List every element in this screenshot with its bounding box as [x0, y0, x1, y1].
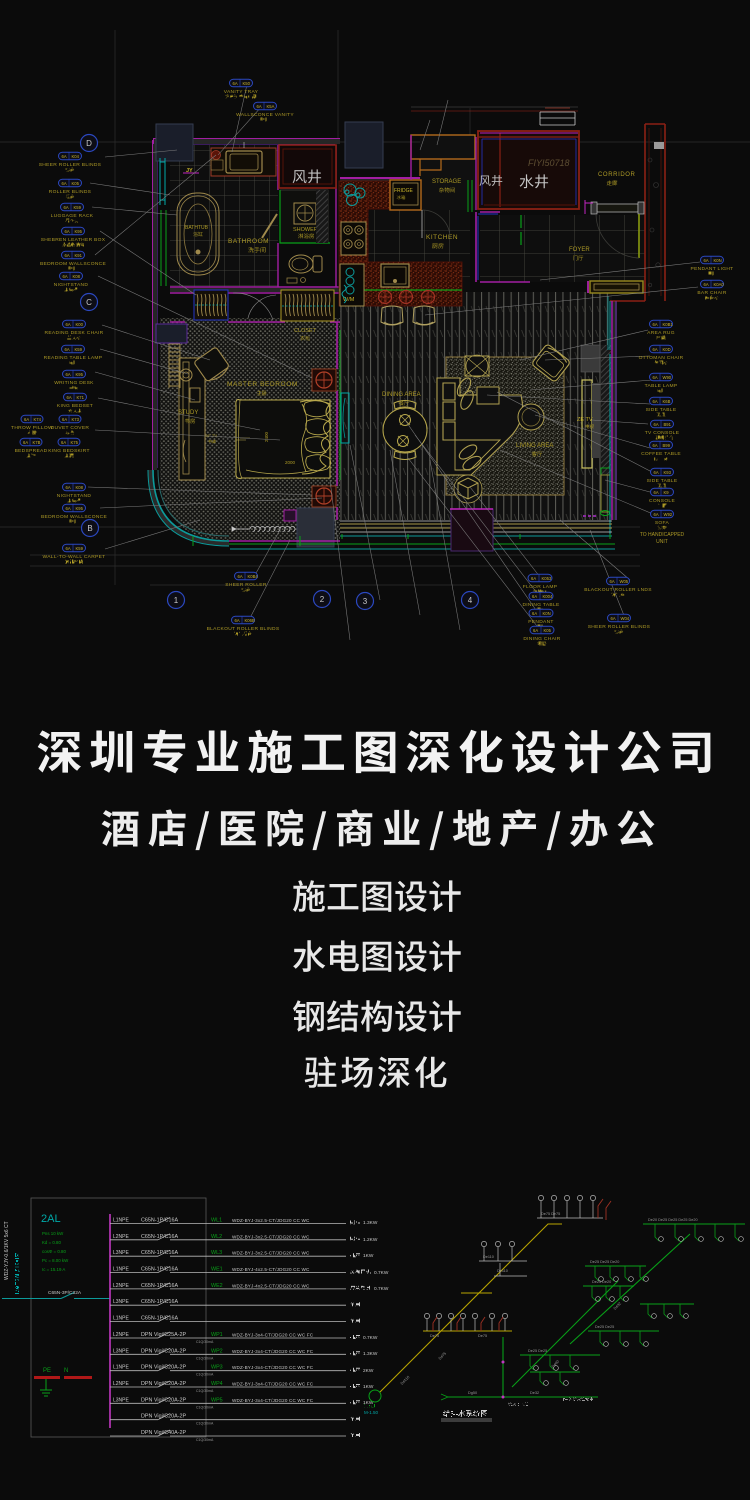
svg-text:L1NPE: L1NPE [113, 1267, 130, 1273]
svg-text:K0B4: K0B4 [248, 574, 259, 579]
svg-text:KITCHEN: KITCHEN [426, 234, 458, 241]
svg-text:K04: K04 [72, 154, 80, 159]
svg-text:WP2: WP2 [211, 1348, 223, 1354]
svg-text:cosΦ = 0.80: cosΦ = 0.80 [42, 1249, 66, 1254]
svg-text:6A: 6A [704, 258, 709, 263]
svg-text:6A: 6A [654, 490, 659, 495]
svg-text:C1Q/30mA: C1Q/30mA [196, 1405, 214, 1409]
svg-text:6A: 6A [654, 470, 659, 475]
svg-text:DPN Vigi/C40A-2P: DPN Vigi/C40A-2P [141, 1430, 187, 1436]
svg-text:4: 4 [468, 596, 473, 605]
svg-text:KING BEDSET: KING BEDSET [57, 403, 93, 409]
svg-text:Pc = 8.00 kW: Pc = 8.00 kW [42, 1258, 69, 1263]
svg-text:6A: 6A [62, 154, 67, 159]
svg-text:B91: B91 [664, 422, 672, 427]
svg-text:PENDANT LIGHT: PENDANT LIGHT [691, 266, 734, 272]
svg-text:L3NPE: L3NPE [113, 1397, 130, 1403]
svg-text:NIGHTSTAND: NIGHTSTAND [57, 493, 92, 499]
svg-text:0.7KW: 0.7KW [374, 1270, 389, 1276]
svg-text:K004: K004 [543, 594, 553, 599]
svg-text:UNIT: UNIT [656, 539, 668, 545]
svg-text:VANITY TRAY: VANITY TRAY [224, 89, 259, 95]
svg-text:L2NPE: L2NPE [113, 1381, 130, 1387]
svg-text:6A: 6A [654, 512, 659, 517]
svg-text:6A: 6A [531, 576, 536, 581]
svg-text:1KW: 1KW [363, 1384, 374, 1390]
svg-text:DPN Vigi/C25A-2P: DPN Vigi/C25A-2P [141, 1332, 187, 1338]
svg-text:C1Q/30mA: C1Q/30mA [196, 1389, 214, 1393]
svg-text:1.2KW: 1.2KW [363, 1237, 378, 1243]
svg-text:SHEER ROLLER BLINDS: SHEER ROLLER BLINDS [588, 624, 651, 630]
svg-text:BLACKOUT ROLLER BLINDS: BLACKOUT ROLLER BLINDS [207, 626, 280, 632]
svg-text:BAR CHAIR: BAR CHAIR [697, 290, 726, 296]
svg-text:C1Q/30mA: C1Q/30mA [196, 1438, 214, 1442]
svg-text:W92: W92 [664, 512, 673, 517]
svg-text:De110: De110 [483, 1255, 494, 1259]
svg-text:WP1: WP1 [211, 1332, 223, 1338]
svg-text:BEDSPREAD: BEDSPREAD [15, 448, 48, 454]
svg-text:K93: K93 [664, 470, 672, 475]
svg-text:Ic = 15.19 A: Ic = 15.19 A [42, 1267, 65, 1272]
svg-text:B99: B99 [663, 443, 671, 448]
svg-text:FLOOR LAMP: FLOOR LAMP [523, 584, 558, 590]
svg-text:D: D [86, 139, 92, 148]
svg-text:DINING CHAIR: DINING CHAIR [523, 636, 560, 642]
svg-text:K05: K05 [72, 181, 80, 186]
svg-text:K05: K05 [544, 628, 552, 633]
svg-text:Dg50: Dg50 [468, 1391, 477, 1395]
svg-text:2000: 2000 [285, 460, 296, 465]
svg-text:K50: K50 [243, 81, 251, 86]
svg-text:6A: 6A [238, 574, 243, 579]
svg-text:2AL: 2AL [41, 1213, 61, 1225]
svg-text:6A: 6A [66, 506, 71, 511]
svg-text:TABLE LAMP: TABLE LAMP [645, 383, 678, 389]
svg-text:WRITING DESK: WRITING DESK [54, 380, 94, 386]
svg-text:READING TABLE LAMP: READING TABLE LAMP [44, 355, 103, 361]
svg-text:WL3: WL3 [211, 1250, 222, 1256]
svg-text:CONSOLE: CONSOLE [649, 498, 675, 504]
svg-text:De75: De75 [478, 1334, 487, 1338]
svg-text:MASTER BEDROOM: MASTER BEDROOM [227, 381, 298, 388]
svg-text:AREA RUG: AREA RUG [647, 330, 675, 336]
svg-text:L1NPE: L1NPE [113, 1218, 130, 1224]
svg-text:WDZ-BYJ-4x2.5-CT/JDG20 CC WC: WDZ-BYJ-4x2.5-CT/JDG20 CC WC [232, 1267, 310, 1272]
svg-text:WDZ-BYJ-3x2.5-CT/JDG20 CC WC: WDZ-BYJ-3x2.5-CT/JDG20 CC WC [232, 1234, 310, 1239]
svg-text:DPN Vigi/C20A-2P: DPN Vigi/C20A-2P [141, 1348, 187, 1354]
svg-text:6A: 6A [65, 229, 70, 234]
svg-text:WDZ-BYJ-3x4-CT/JDG20 CC WC FC: WDZ-BYJ-3x4-CT/JDG20 CC WC FC [232, 1382, 314, 1387]
svg-text:FOYER: FOYER [569, 247, 590, 253]
svg-text:WL1: WL1 [211, 1218, 222, 1224]
svg-text:C65N-1P/C16A: C65N-1P/C16A [141, 1316, 179, 1322]
svg-text:K59: K59 [76, 546, 84, 551]
svg-text:2: 2 [320, 595, 325, 604]
svg-text:6A: 6A [233, 81, 238, 86]
svg-text:BATHROOM: BATHROOM [228, 238, 269, 245]
svg-text:L2NPE: L2NPE [113, 1283, 130, 1289]
svg-text:L2NPE: L2NPE [113, 1234, 130, 1240]
svg-text:COFFEE TABLE: COFFEE TABLE [641, 451, 681, 457]
svg-text:0.7KW: 0.7KW [363, 1335, 378, 1341]
svg-text:ROLLER BLINDS: ROLLER BLINDS [49, 189, 92, 195]
svg-text:K00: K00 [76, 322, 84, 327]
svg-text:SOFA: SOFA [655, 520, 670, 526]
svg-text:C1Q/30mA: C1Q/30mA [196, 1422, 214, 1426]
svg-text:K73: K73 [72, 417, 80, 422]
svg-text:W04: W04 [621, 616, 630, 621]
svg-text:K59: K59 [75, 347, 83, 352]
svg-text:6A: 6A [65, 347, 70, 352]
svg-text:C: C [86, 298, 92, 307]
svg-text:6A: 6A [235, 618, 240, 623]
svg-text:K08: K08 [76, 485, 84, 490]
svg-text:K5A: K5A [267, 104, 275, 109]
svg-text:3: 3 [363, 597, 368, 606]
svg-text:6A: 6A [533, 628, 538, 633]
svg-text:K91: K91 [75, 253, 83, 258]
svg-text:K7B: K7B [33, 440, 41, 445]
svg-text:WDZ-BYJ-3x2.5-CT/JDG20 CC WC: WDZ-BYJ-3x2.5-CT/JDG20 CC WC [232, 1218, 310, 1223]
svg-text:BEDROOM WALLSCONCE: BEDROOM WALLSCONCE [41, 514, 108, 520]
svg-text:6A: 6A [653, 322, 658, 327]
svg-text:DINING AREA: DINING AREA [382, 392, 421, 398]
svg-text:B: B [87, 524, 92, 533]
svg-text:0.7KW: 0.7KW [374, 1286, 389, 1292]
svg-text:K0D: K0D [663, 347, 671, 352]
svg-text:6A: 6A [62, 417, 67, 422]
svg-text:DINING TABLE: DINING TABLE [522, 602, 560, 608]
svg-text:K0N: K0N [543, 611, 551, 616]
svg-text:C1Q/30mA: C1Q/30mA [196, 1373, 214, 1377]
svg-text:2KW: 2KW [363, 1368, 374, 1374]
svg-text:WE2: WE2 [211, 1283, 223, 1289]
svg-text:De75 De75: De75 De75 [541, 1212, 560, 1216]
svg-text:C1Q/30mA: C1Q/30mA [196, 1356, 214, 1360]
svg-text:K95: K95 [76, 506, 84, 511]
svg-text:C65N-1P/C16A: C65N-1P/C16A [141, 1250, 179, 1256]
svg-text:OTTOMAN CHAIR: OTTOMAN CHAIR [639, 355, 684, 361]
svg-text:6A: 6A [66, 485, 71, 490]
svg-text:WP4: WP4 [211, 1381, 223, 1387]
svg-text:6A: 6A [653, 399, 658, 404]
svg-text:Pns 10 kW: Pns 10 kW [42, 1231, 64, 1236]
svg-text:KING BEDSKIRT: KING BEDSKIRT [48, 448, 90, 454]
svg-text:De110: De110 [497, 1269, 508, 1273]
svg-text:W05: W05 [620, 579, 629, 584]
svg-text:WDZ-BYJ-3x4-CT/JDG20 CC WC FC: WDZ-BYJ-3x4-CT/JDG20 CC WC FC [232, 1333, 314, 1338]
svg-text:K0N: K0N [714, 258, 722, 263]
svg-text:K08: K08 [73, 274, 81, 279]
svg-text:STUDY: STUDY [178, 410, 198, 416]
svg-text:1: 1 [174, 596, 179, 605]
svg-text:L1NPE: L1NPE [113, 1316, 130, 1322]
svg-text:K9: K9 [664, 490, 670, 495]
svg-text:De32: De32 [530, 1391, 539, 1395]
svg-text:K71: K71 [77, 395, 85, 400]
svg-text:1.3KW: 1.3KW [363, 1220, 378, 1226]
svg-text:L2NPE: L2NPE [113, 1332, 130, 1338]
svg-text:De20 De25 De25 De25 De20: De20 De25 De25 De25 De20 [648, 1218, 698, 1222]
svg-text:6A: 6A [65, 253, 70, 258]
svg-text:DPN Vigi/C20A-2P: DPN Vigi/C20A-2P [141, 1365, 187, 1371]
svg-text:DUVET COVER: DUVET COVER [51, 425, 90, 431]
svg-text:PE: PE [43, 1368, 51, 1374]
svg-text:46" TV: 46" TV [205, 433, 217, 438]
svg-text:M-1.50: M-1.50 [364, 1410, 379, 1415]
svg-text:C65N-1P/C16A: C65N-1P/C16A [141, 1234, 179, 1240]
svg-text:De25 De25: De25 De25 [595, 1325, 614, 1329]
svg-text:BEDROOM WALLSCONCE: BEDROOM WALLSCONCE [40, 261, 107, 267]
svg-text:PENDANT: PENDANT [528, 619, 553, 625]
svg-text:6A: 6A [257, 104, 262, 109]
svg-text:6A: 6A [653, 443, 658, 448]
svg-text:L3NPE: L3NPE [113, 1348, 130, 1354]
svg-text:6A: 6A [64, 205, 69, 210]
svg-text:SHEER ROLLER BLINDS: SHEER ROLLER BLINDS [39, 162, 102, 168]
svg-text:De75: De75 [430, 1334, 439, 1338]
svg-text:WL2: WL2 [211, 1234, 222, 1240]
svg-text:6A: 6A [66, 372, 71, 377]
svg-text:C65N-3P/C32A: C65N-3P/C32A [48, 1290, 82, 1296]
svg-text:WDZ-BYJ-3x4-CT/JDG20 CC WC FC: WDZ-BYJ-3x4-CT/JDG20 CC WC FC [232, 1398, 314, 1403]
svg-text:6A: 6A [63, 274, 68, 279]
svg-text:BLACKOUT ROLLER LNDS: BLACKOUT ROLLER LNDS [584, 587, 652, 593]
svg-text:K6B: K6B [663, 399, 671, 404]
svg-text:1.3KW: 1.3KW [363, 1351, 378, 1357]
svg-text:N: N [64, 1368, 68, 1374]
svg-text:W90: W90 [663, 375, 672, 380]
svg-text:BATHTUB: BATHTUB [185, 225, 209, 231]
svg-text:THROW PILLOW: THROW PILLOW [11, 425, 53, 431]
svg-text:Kd = 0.80: Kd = 0.80 [42, 1240, 61, 1245]
svg-text:SHEER ROLLER: SHEER ROLLER [225, 582, 267, 588]
svg-text:6A: 6A [704, 282, 709, 287]
svg-text:De25 De20: De25 De20 [592, 1280, 611, 1284]
svg-text:SHOWER: SHOWER [293, 227, 318, 233]
svg-text:K75: K75 [71, 440, 79, 445]
svg-text:K59: K59 [74, 205, 82, 210]
svg-text:WE1: WE1 [211, 1267, 223, 1273]
svg-text:SHEBREN LEATHER BOX: SHEBREN LEATHER BOX [41, 237, 106, 243]
svg-text:WP5: WP5 [211, 1397, 223, 1403]
svg-text:K74: K74 [34, 417, 42, 422]
svg-text:READING DESK CHAIR: READING DESK CHAIR [45, 330, 104, 336]
svg-text:6A: 6A [62, 181, 67, 186]
svg-text:1KW: 1KW [363, 1253, 374, 1259]
svg-text:L3NPE: L3NPE [113, 1250, 130, 1256]
svg-text:WDZ-BYJ-3x2.5-CT/JDG20 CC WC: WDZ-BYJ-3x2.5-CT/JDG20 CC WC [232, 1251, 310, 1256]
svg-text:K06B: K06B [245, 618, 255, 623]
svg-text:SIDE TABLE: SIDE TABLE [646, 407, 677, 413]
svg-text:DPN Vigi/C20A-2P: DPN Vigi/C20A-2P [141, 1397, 187, 1403]
svg-text:NIGHTSTAND: NIGHTSTAND [54, 282, 89, 288]
svg-text:6A: 6A [611, 616, 616, 621]
svg-text:De25 De25: De25 De25 [528, 1349, 547, 1353]
svg-text:TO HANDICAPPED: TO HANDICAPPED [640, 532, 685, 538]
svg-text:6A: 6A [66, 546, 71, 551]
svg-text:K053: K053 [542, 576, 552, 581]
svg-text:L1NPE: L1NPE [113, 1365, 130, 1371]
svg-text:2400: 2400 [264, 431, 269, 442]
svg-text:6A: 6A [654, 422, 659, 427]
svg-text:De25 De25 De20: De25 De25 De20 [590, 1260, 619, 1264]
svg-text:WALL-TO-WALL CARPET: WALL-TO-WALL CARPET [43, 554, 106, 560]
svg-text:K0A0: K0A0 [714, 282, 725, 287]
svg-text:SIDE TABLE: SIDE TABLE [647, 478, 678, 484]
svg-text:DPN Vigi/C20A-2P: DPN Vigi/C20A-2P [141, 1414, 187, 1420]
svg-text:WALLSCONCE VANITY: WALLSCONCE VANITY [236, 112, 294, 118]
svg-text:WDZ-BYJ-3x4-CT/JDG20 CC WC FC: WDZ-BYJ-3x4-CT/JDG20 CC WC FC [232, 1349, 314, 1354]
svg-text:6A: 6A [653, 347, 658, 352]
svg-text:K95: K95 [75, 229, 83, 234]
svg-text:FIYI50718: FIYI50718 [528, 158, 570, 168]
svg-text:6A: 6A [61, 440, 66, 445]
svg-text:C1Q/30mA: C1Q/30mA [196, 1340, 214, 1344]
svg-text:WDZ-YJY-0.6/1KV 5x6 CT: WDZ-YJY-0.6/1KV 5x6 CT [4, 1221, 10, 1280]
svg-text:TV CONSOLE: TV CONSOLE [645, 430, 680, 436]
svg-text:C65N-1P/C16A: C65N-1P/C16A [141, 1299, 179, 1305]
svg-text:WDZ-BYJ-4x2.5-CT/JDG20 CC WC: WDZ-BYJ-4x2.5-CT/JDG20 CC WC [232, 1283, 310, 1288]
svg-text:CLOSET: CLOSET [294, 328, 317, 334]
svg-text:6A: 6A [23, 440, 28, 445]
svg-text:6A: 6A [532, 594, 537, 599]
svg-text:WP3: WP3 [211, 1365, 223, 1371]
svg-text:STORAGE: STORAGE [432, 179, 461, 185]
svg-text:L3NPE: L3NPE [113, 1299, 130, 1305]
svg-text:ZE TV: ZE TV [577, 417, 593, 423]
svg-text:WDZ-BYJ-3x4-CT/JDG20 CC WC FC: WDZ-BYJ-3x4-CT/JDG20 CC WC FC [232, 1365, 314, 1370]
svg-text:K0B1: K0B1 [663, 322, 674, 327]
svg-text:LUGGAGE RACK: LUGGAGE RACK [51, 213, 94, 219]
svg-text:6A: 6A [610, 579, 615, 584]
svg-text:FRIDGE: FRIDGE [394, 188, 414, 194]
svg-text:C65N-1P/C16A: C65N-1P/C16A [141, 1283, 179, 1289]
svg-text:CORRIDOR: CORRIDOR [598, 172, 636, 178]
svg-text:6A: 6A [67, 395, 72, 400]
svg-text:C65N-1P/C16A: C65N-1P/C16A [141, 1218, 179, 1224]
svg-text:6A: 6A [532, 611, 537, 616]
svg-text:C65N-1P/C16A: C65N-1P/C16A [141, 1267, 179, 1273]
svg-text:6A: 6A [24, 417, 29, 422]
svg-text:DPN Vigi/C20A-2P: DPN Vigi/C20A-2P [141, 1381, 187, 1387]
svg-text:6A: 6A [66, 322, 71, 327]
svg-text:6A: 6A [653, 375, 658, 380]
svg-text:K95: K95 [76, 372, 84, 377]
svg-text:LIVING AREA: LIVING AREA [516, 443, 553, 449]
